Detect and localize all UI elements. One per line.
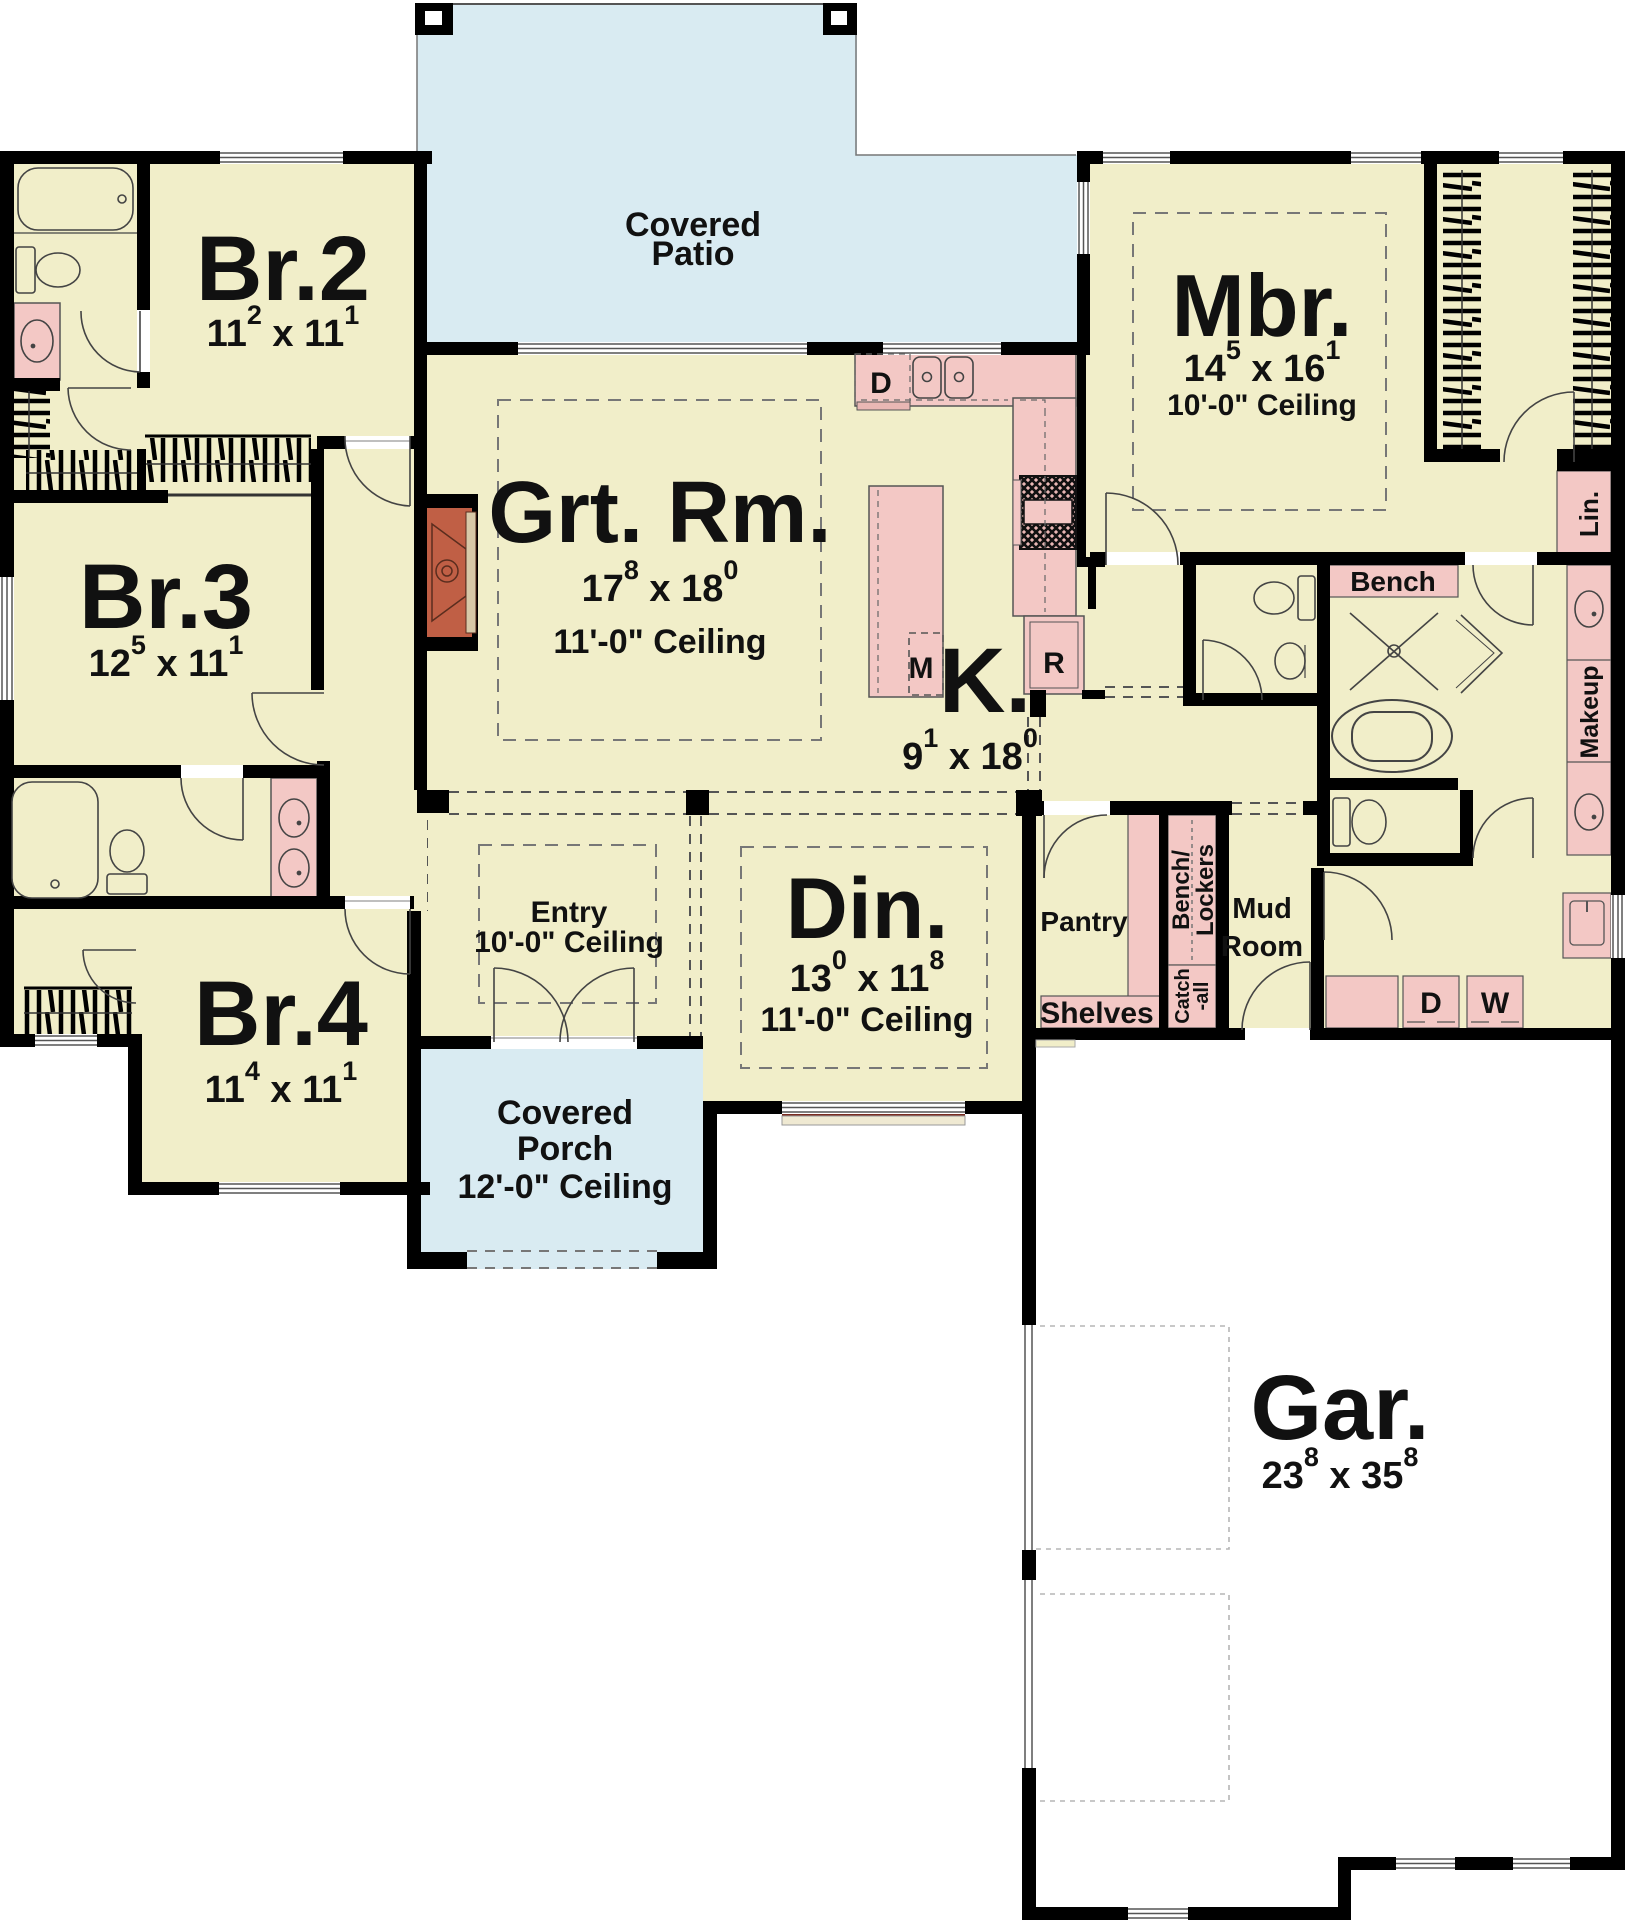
svg-text:Lin.: Lin. xyxy=(1574,491,1604,537)
svg-text:12'-0" Ceiling: 12'-0" Ceiling xyxy=(457,1168,672,1206)
svg-text:W: W xyxy=(1481,987,1510,1020)
svg-text:Porch: Porch xyxy=(517,1130,613,1168)
svg-text:Bench/: Bench/ xyxy=(1168,850,1195,930)
svg-text:D: D xyxy=(870,367,892,400)
svg-text:D: D xyxy=(1420,987,1442,1020)
svg-text:10'-0" Ceiling: 10'-0" Ceiling xyxy=(474,926,664,959)
svg-text:Mud: Mud xyxy=(1232,893,1292,925)
svg-text:Entry: Entry xyxy=(531,896,608,929)
svg-text:Patio: Patio xyxy=(651,235,734,273)
svg-text:10'-0" Ceiling: 10'-0" Ceiling xyxy=(1167,389,1357,422)
svg-text:K.: K. xyxy=(939,630,1031,732)
svg-text:Pantry: Pantry xyxy=(1040,906,1128,937)
svg-text:Room: Room xyxy=(1221,931,1303,963)
svg-text:-all: -all xyxy=(1191,982,1213,1011)
svg-text:M: M xyxy=(909,652,934,685)
svg-text:11'-0" Ceiling: 11'-0" Ceiling xyxy=(760,1001,973,1039)
svg-text:11'-0" Ceiling: 11'-0" Ceiling xyxy=(553,623,766,661)
svg-text:Covered: Covered xyxy=(497,1094,633,1132)
svg-text:Makeup: Makeup xyxy=(1576,665,1604,758)
svg-text:R: R xyxy=(1043,647,1065,680)
svg-text:Bench: Bench xyxy=(1350,566,1436,597)
svg-text:Br.4: Br.4 xyxy=(194,963,368,1065)
svg-text:Din.: Din. xyxy=(786,861,948,957)
svg-text:Shelves: Shelves xyxy=(1040,997,1153,1030)
svg-text:Br.3: Br.3 xyxy=(79,546,253,648)
svg-text:Lockers: Lockers xyxy=(1192,844,1219,936)
svg-text:Grt. Rm.: Grt. Rm. xyxy=(488,464,831,561)
